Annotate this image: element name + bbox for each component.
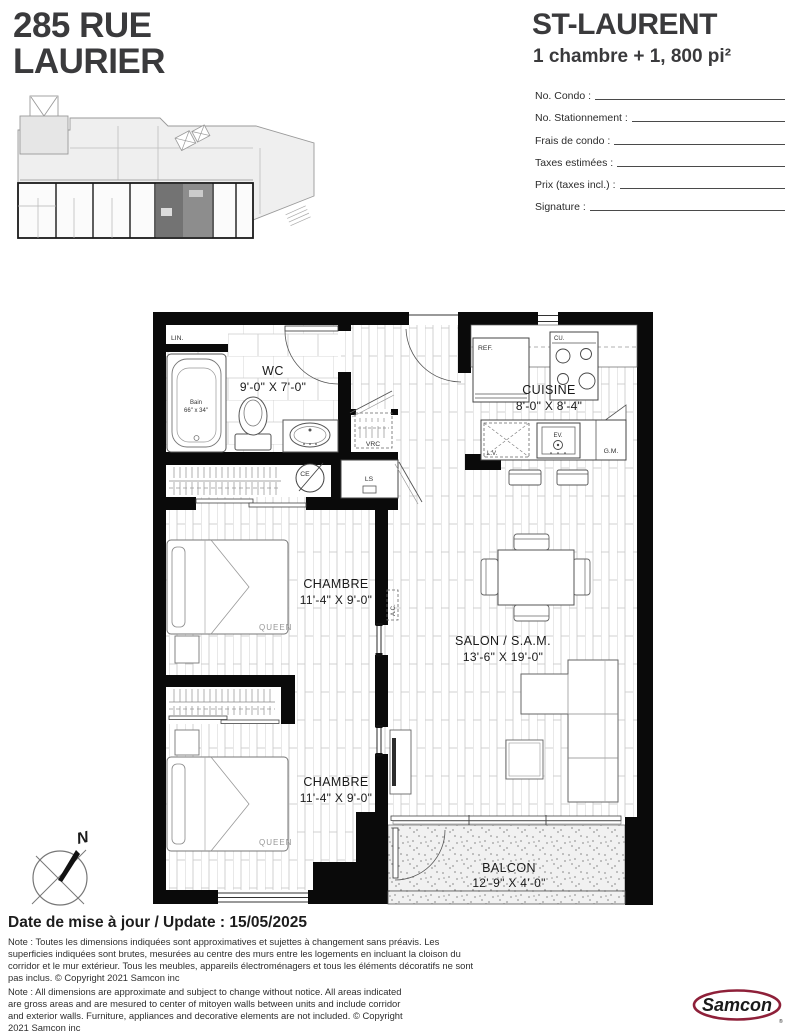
dining-table [498, 550, 574, 605]
ac-label: A.C. [391, 604, 397, 616]
coffee-table [506, 740, 543, 779]
vanity-sink-icon [283, 420, 338, 452]
label-taxes: Taxes estimées : [535, 157, 617, 169]
salon-dims: 13'-6" X 19'-0" [463, 650, 543, 664]
form-row-signature: Signature : [535, 191, 785, 213]
sales-form: No. Condo : No. Stationnement : Frais de… [535, 80, 785, 213]
cu-label: CU. [554, 336, 565, 342]
label-no-condo: No. Condo : [535, 90, 595, 102]
mid-closet-slider-2 [221, 720, 279, 724]
disclaimer-en: Note : All dimensions are approximate an… [8, 986, 410, 1032]
ref-label: REF. [478, 345, 493, 352]
balcony-edge [388, 891, 625, 904]
form-row-frais-condo: Frais de condo : [535, 124, 785, 146]
blank-line-taxes [617, 155, 785, 167]
building-key-plan [8, 88, 318, 253]
model-name: ST-LAURENT [532, 8, 717, 42]
cuisine-name: CUISINE [522, 383, 576, 397]
label-signature: Signature : [535, 201, 590, 213]
form-row-taxes: Taxes estimées : [535, 147, 785, 169]
samcon-logo: Samcon ® [692, 988, 784, 1026]
label-frais-condo: Frais de condo : [535, 135, 614, 147]
north-compass-icon: N [22, 820, 117, 915]
closet-slider-2 [249, 503, 306, 507]
ev-label: EV. [553, 433, 562, 439]
kitchen-sink-icon: EV. [537, 423, 580, 458]
bathtub-label: Bain [190, 400, 202, 406]
label-prix: Prix (taxes incl.) : [535, 179, 620, 191]
blank-line-no-stationnement [632, 110, 785, 122]
chambre1-dims: 11'-4" X 9'-0" [300, 593, 372, 607]
unit-floor-plan: LIN. Bain 66" x 34" [153, 312, 653, 912]
vrc-label: VRC [366, 441, 380, 448]
queen1-label: QUEEN [259, 623, 292, 632]
bathtub-size-label: 66" x 34" [184, 408, 208, 414]
tv-unit [390, 730, 411, 794]
wc-dims: 9'-0" X 7'-0" [240, 380, 306, 394]
chambre2-name: CHAMBRE [303, 775, 368, 789]
bed-queen-2: QUEEN [167, 757, 292, 851]
balcon-dims: 12'-9" X 4'-0" [472, 876, 545, 890]
floorplan-sheet: 285 RUE LAURIER [0, 0, 790, 1032]
patio-door [391, 815, 621, 825]
blank-line-frais-condo [614, 133, 785, 145]
nightstand-2 [175, 730, 199, 755]
bed-queen-1: QUEEN [167, 540, 292, 634]
island: L.V. EV. G.M. [481, 420, 626, 460]
ls-label: LS [365, 476, 374, 483]
gm-label: G.M. [604, 448, 619, 455]
linen-closet-label: LIN. [171, 335, 184, 342]
samcon-logo-text: Samcon [702, 995, 772, 1015]
window-top [538, 312, 558, 325]
mid-closet-slider-1 [169, 716, 227, 720]
form-row-no-condo: No. Condo : [535, 80, 785, 102]
units-row [18, 183, 253, 238]
queen2-label: QUEEN [259, 838, 292, 847]
blank-line-prix [620, 177, 785, 189]
closet-slider-1 [196, 499, 253, 503]
address-line1: 285 RUE [13, 8, 165, 44]
ce-label: CE [300, 471, 310, 478]
chambre1-name: CHAMBRE [303, 577, 368, 591]
blank-line-no-condo [595, 88, 785, 100]
water-heater-icon: CE [296, 463, 324, 492]
nightstand-1 [175, 636, 199, 663]
label-no-stationnement: No. Stationnement : [535, 112, 632, 124]
balcon-name: BALCON [482, 861, 536, 875]
page-title: 285 RUE LAURIER [13, 8, 165, 81]
compass-north-label: N [75, 829, 90, 848]
entry-door-opening [406, 312, 461, 325]
lv-label: L.V. [487, 451, 497, 457]
highlighted-unit [156, 184, 212, 237]
address-line2: LAURIER [13, 44, 165, 80]
chambre2-dims: 11'-4" X 9'-0" [300, 791, 372, 805]
blank-line-signature [590, 199, 785, 211]
disclaimer-fr: Note : Toutes les dimensions indiquées s… [8, 936, 482, 984]
salon-name: SALON / S.A.M. [455, 634, 551, 648]
wc-name: WC [262, 364, 284, 378]
model-spec: 1 chambre + 1, 800 pi² [533, 46, 731, 68]
fridge-icon: REF. [473, 338, 529, 402]
update-date: Date de mise à jour / Update : 15/05/202… [8, 914, 307, 932]
registered-mark: ® [779, 1018, 783, 1025]
cuisine-dims: 8'-0" X 8'-4" [516, 399, 582, 413]
form-row-prix: Prix (taxes incl.) : [535, 169, 785, 191]
form-row-no-stationnement: No. Stationnement : [535, 102, 785, 124]
window-bedroom2 [215, 890, 311, 904]
